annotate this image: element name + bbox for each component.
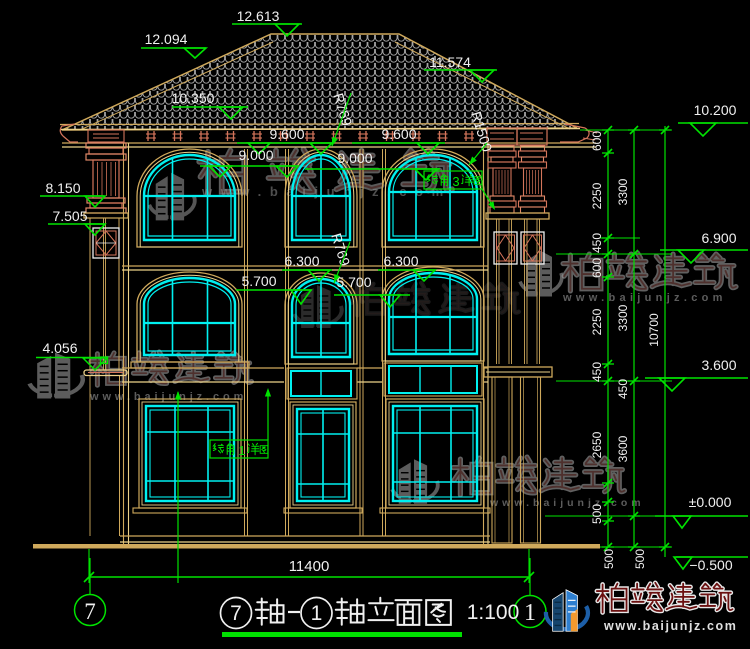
svg-text:8.150: 8.150 [45, 180, 80, 196]
svg-text:3300: 3300 [616, 178, 630, 205]
svg-text:500: 500 [602, 549, 616, 569]
svg-text:9.600: 9.600 [381, 126, 416, 142]
svg-text:2650: 2650 [590, 431, 604, 458]
svg-text:1: 1 [238, 443, 245, 458]
svg-text:600: 600 [590, 131, 604, 151]
svg-text:4.056: 4.056 [42, 340, 77, 356]
svg-text:450: 450 [590, 233, 604, 253]
svg-text:10.200: 10.200 [694, 102, 737, 118]
svg-text:www.baijunjz.com: www.baijunjz.com [562, 292, 727, 304]
svg-text:12.094: 12.094 [145, 31, 188, 47]
svg-text:9.000: 9.000 [337, 150, 372, 166]
svg-text:10.350: 10.350 [172, 90, 215, 106]
svg-text:11400: 11400 [289, 558, 330, 575]
svg-text:600: 600 [590, 258, 604, 278]
svg-text:6.300: 6.300 [383, 253, 418, 269]
svg-text:500: 500 [590, 504, 604, 524]
svg-text:5.700: 5.700 [241, 273, 276, 289]
svg-text:500: 500 [633, 549, 647, 569]
svg-text:3600: 3600 [616, 435, 630, 462]
svg-text:11.574: 11.574 [429, 54, 471, 70]
svg-text:450: 450 [616, 379, 630, 399]
svg-text:−0.500: −0.500 [689, 557, 732, 573]
svg-text:7: 7 [84, 599, 96, 624]
svg-text:±0.000: ±0.000 [689, 494, 732, 510]
svg-text:9.000: 9.000 [238, 147, 273, 163]
svg-text:3300: 3300 [616, 304, 630, 331]
svg-text:www.baijunjz.com: www.baijunjz.com [603, 619, 737, 633]
svg-text:7.505: 7.505 [52, 208, 87, 224]
svg-text:1: 1 [311, 602, 323, 625]
svg-text:5.700: 5.700 [336, 274, 371, 290]
svg-text:3: 3 [452, 174, 459, 189]
svg-text:www.baijunjz.com: www.baijunjz.com [89, 391, 247, 403]
svg-text:1: 1 [524, 600, 536, 626]
svg-text:6.900: 6.900 [701, 230, 736, 246]
svg-text:450: 450 [590, 362, 604, 382]
svg-text:1:100: 1:100 [467, 601, 520, 624]
svg-text:2250: 2250 [590, 182, 604, 209]
svg-text:3.600: 3.600 [701, 357, 736, 373]
svg-text:6.300: 6.300 [284, 253, 319, 269]
svg-text:7: 7 [230, 602, 242, 625]
svg-text:2250: 2250 [590, 308, 604, 335]
svg-text:10700: 10700 [647, 313, 661, 347]
svg-text:12.613: 12.613 [237, 8, 280, 24]
svg-text:9.600: 9.600 [269, 126, 304, 142]
